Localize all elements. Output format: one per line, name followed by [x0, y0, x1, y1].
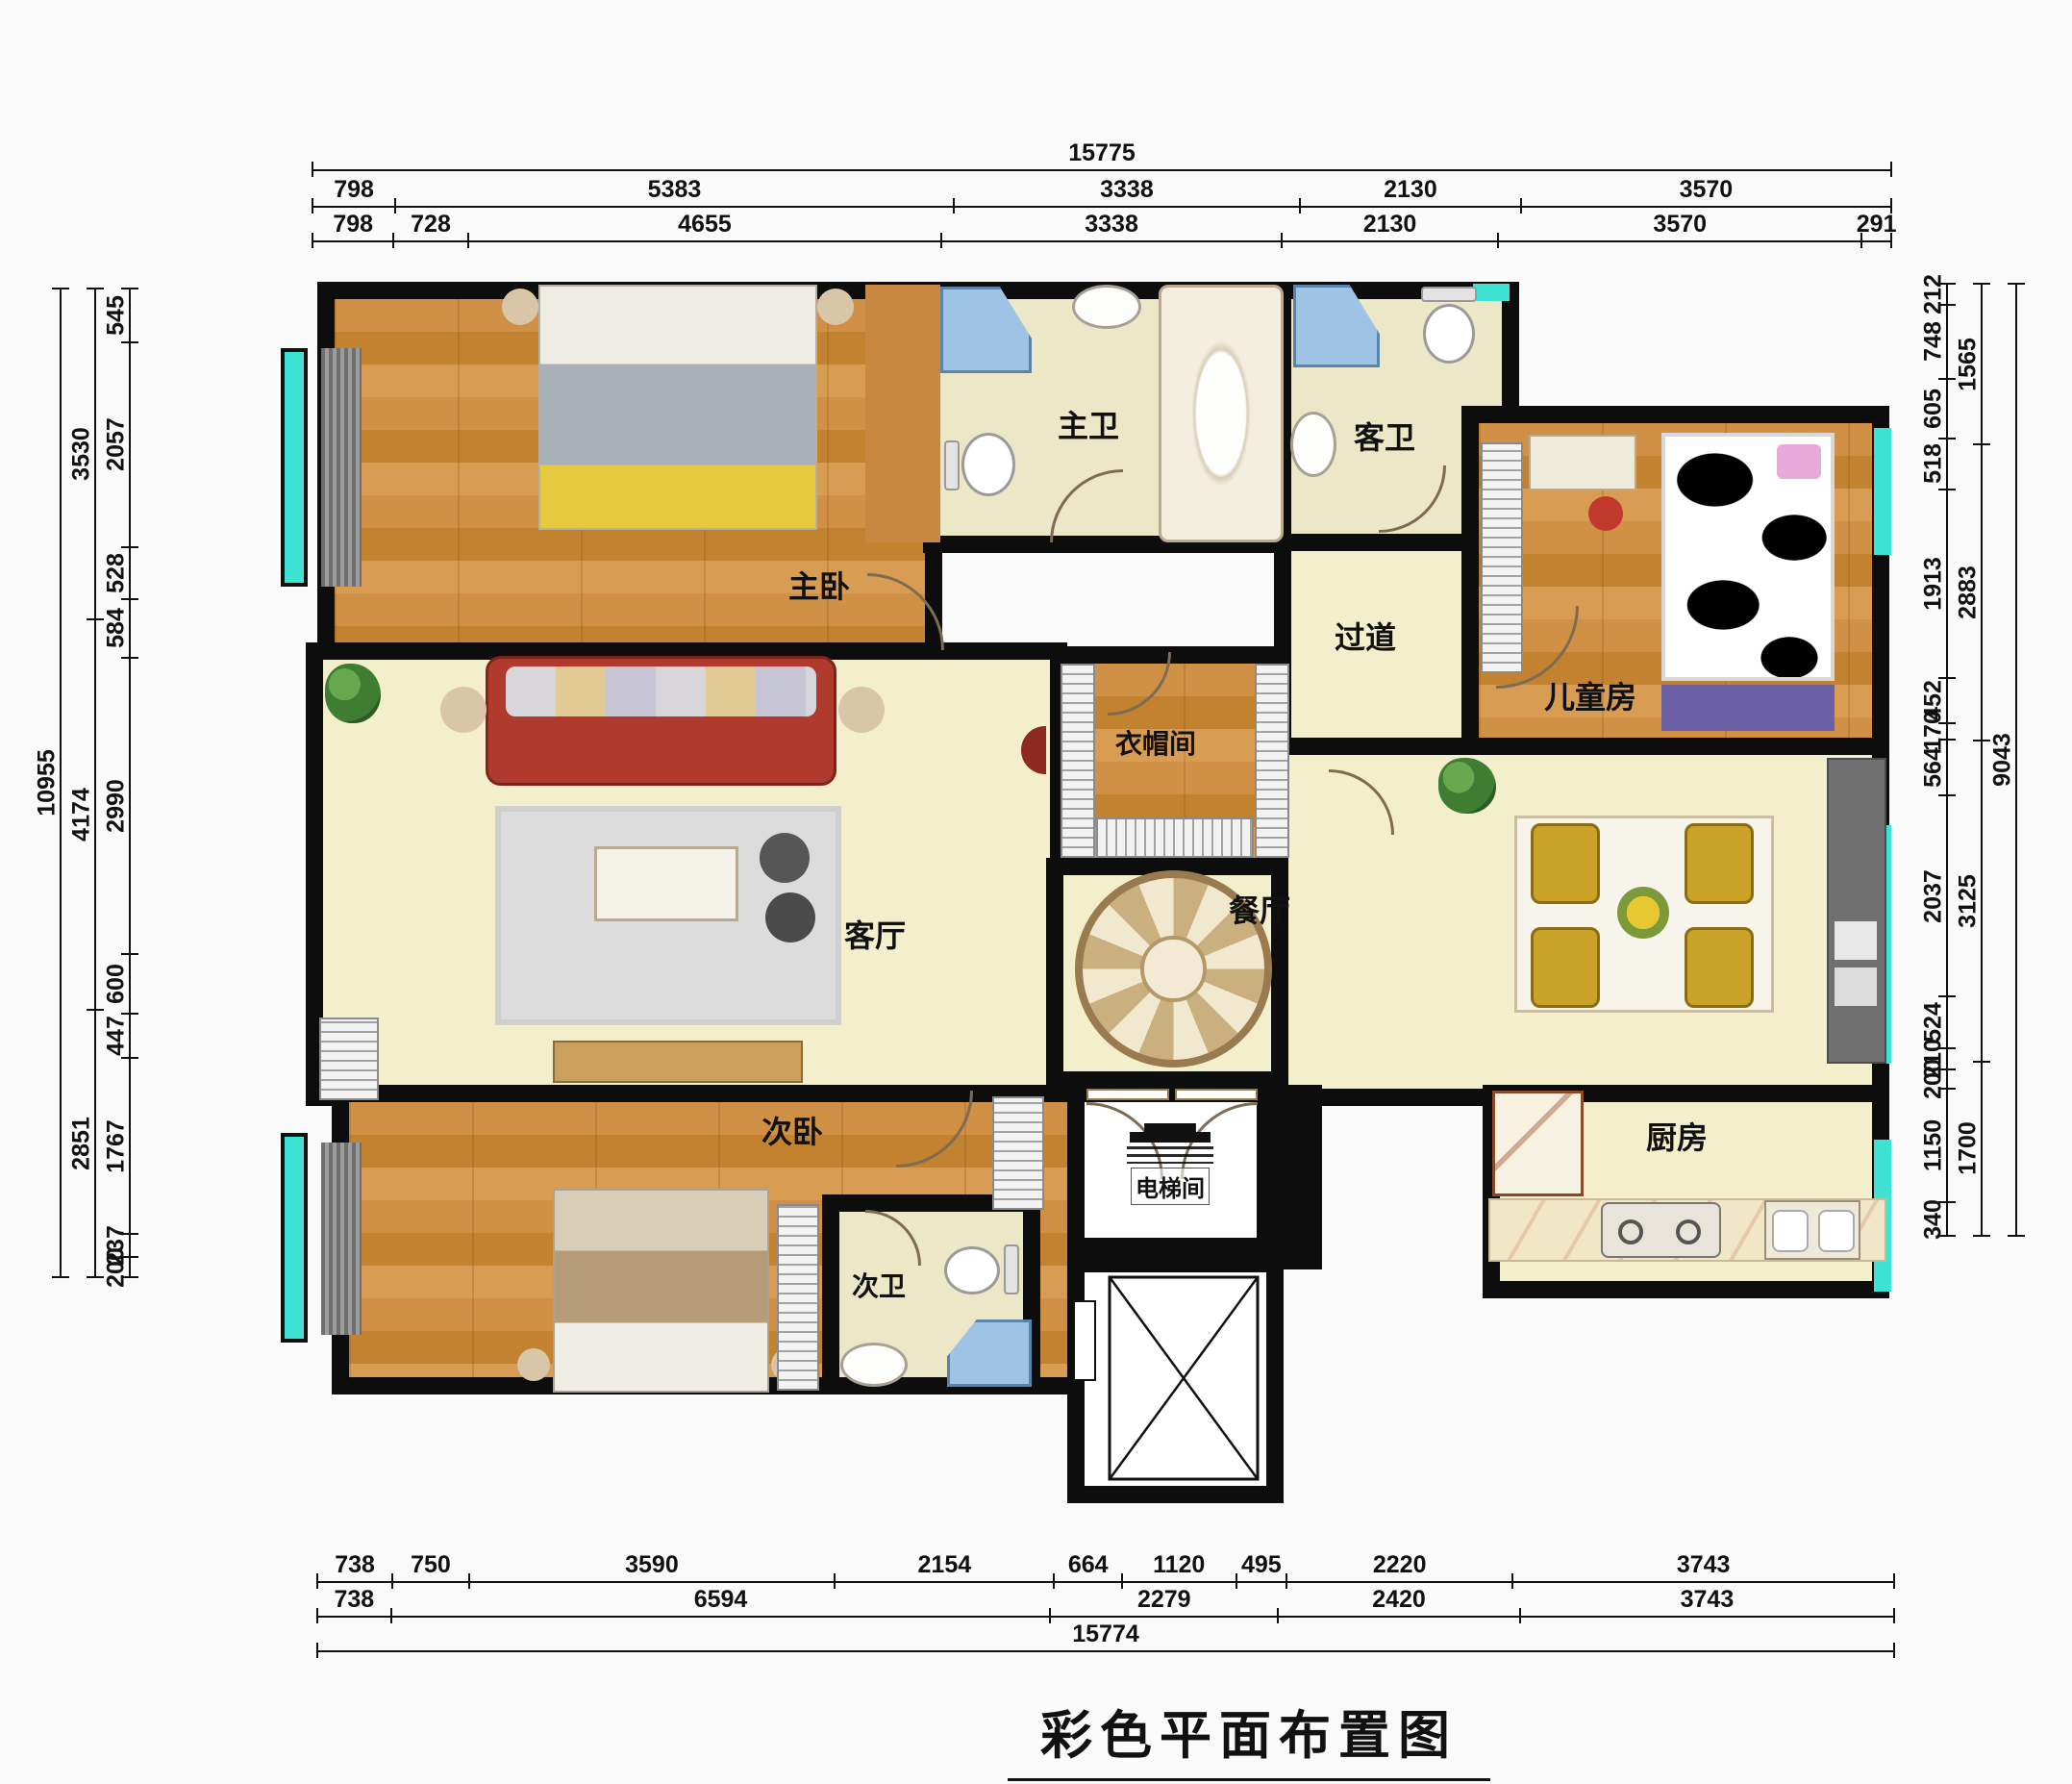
dim-segment: 212 [1935, 284, 1960, 305]
dim-value: 2279 [1137, 1586, 1191, 1614]
dim-segment: 1767 [117, 1058, 142, 1233]
dim-segment: 5383 [395, 188, 954, 214]
drawing-title: 彩色平面布置图 [1008, 1693, 1490, 1781]
dining-chair-2 [1531, 927, 1600, 1008]
label-hallway: 过道 [1335, 614, 1396, 658]
kitchen-sink [1764, 1200, 1860, 1260]
window-second-bay [281, 1133, 308, 1343]
dim-value: 495 [1241, 1551, 1282, 1579]
second-sink [840, 1343, 908, 1387]
dim-value: 3743 [1677, 1551, 1731, 1579]
dim-value: 1565 [1955, 338, 1983, 391]
dining-sideboard [1827, 758, 1886, 1064]
dim-value: 545 [103, 295, 131, 336]
lobby-wardrobe [992, 1096, 1044, 1210]
dim-segment: 2420 [1278, 1598, 1520, 1623]
dim-segment: 170 [1935, 723, 1960, 740]
second-bed [553, 1189, 769, 1393]
dim-segment: 518 [1935, 439, 1960, 490]
label-kitchen: 厨房 [1646, 1114, 1708, 1158]
guest-sink [1290, 412, 1336, 477]
master-bed [538, 285, 817, 530]
dim-value: 5383 [648, 176, 702, 204]
dim-value: 738 [335, 1586, 375, 1614]
living-plant [325, 664, 381, 723]
dim-value: 200 [103, 1247, 131, 1288]
dim-value: 15775 [1068, 139, 1136, 167]
dim-segment: 15775 [312, 152, 1891, 177]
dining-centerpiece [1617, 887, 1669, 939]
dim-value: 2037 [1920, 869, 1948, 923]
master-toilet [961, 433, 1015, 496]
sink-basin-1 [1772, 1210, 1809, 1252]
master-sink [1072, 285, 1141, 329]
dim-segment: 584 [117, 599, 142, 657]
shaft-side-panel [1073, 1300, 1096, 1381]
dining-chair-3 [1685, 823, 1754, 904]
dim-segment: 3338 [941, 223, 1281, 248]
coffee-table [594, 846, 738, 921]
master-bathtub [1159, 285, 1284, 542]
stove-burner-1 [1618, 1219, 1643, 1244]
dim-value: 518 [1920, 443, 1948, 484]
dim-value: 2420 [1372, 1586, 1426, 1614]
dim-segment: 664 [1054, 1564, 1121, 1589]
dim-value: 3338 [1100, 176, 1154, 204]
label-second-bath: 次卫 [852, 1266, 906, 1304]
dim-chain-left-inner: 545205752858429906004471767237200 [117, 289, 142, 1277]
dim-segment: 4655 [468, 223, 942, 248]
dining-chair-4 [1685, 927, 1754, 1008]
label-guest-bath: 客卫 [1354, 414, 1415, 458]
dim-chain-right-outer: 9043 [2004, 284, 2029, 1236]
dim-segment: 2130 [1282, 223, 1499, 248]
label-elevator: 电梯间 [1131, 1168, 1210, 1205]
sideboard-appliance-2 [1835, 967, 1877, 1006]
label-master-bath: 主卫 [1058, 402, 1119, 446]
dim-value: 3338 [1085, 211, 1138, 239]
dim-segment: 3590 [469, 1564, 835, 1589]
dining-chair-1 [1531, 823, 1600, 904]
dim-value: 10955 [34, 749, 62, 817]
dim-segment: 2154 [835, 1564, 1054, 1589]
dim-segment: 1700 [1969, 1062, 1994, 1237]
dim-segment: 15774 [317, 1633, 1894, 1658]
dim-chain-top-row3: 7987284655333821303570291 [312, 223, 1891, 248]
dim-value: 524 [1920, 1002, 1948, 1043]
guest-toilet [1423, 304, 1475, 364]
label-living-room: 客厅 [844, 912, 906, 956]
dim-value: 728 [411, 211, 451, 239]
dim-value: 600 [103, 964, 131, 1004]
dim-segment: 528 [117, 547, 142, 600]
dim-segment: 200 [117, 1257, 142, 1277]
dim-value: 15774 [1072, 1621, 1139, 1648]
dim-value: 291 [1857, 211, 1897, 239]
dim-value: 2851 [68, 1117, 96, 1170]
dim-value: 528 [103, 553, 131, 593]
dim-chain-right-inner: 2127486055181913452170564203752421020011… [1935, 284, 1960, 1236]
children-pillow [1777, 444, 1821, 479]
cloak-shelf-right [1255, 664, 1289, 858]
sideboard-appliance-1 [1835, 921, 1877, 960]
sofa [486, 656, 836, 786]
dim-value: 2130 [1384, 176, 1437, 204]
dim-chain-bottom-row1: 73875035902154664112049522203743 [317, 1564, 1894, 1589]
second-toilet-tank [1004, 1244, 1019, 1294]
kitchen-table [1492, 1091, 1584, 1196]
cloak-shelf-bottom [1096, 817, 1254, 858]
dim-value: 3125 [1955, 874, 1983, 928]
dim-value: 584 [103, 609, 131, 649]
dim-value: 750 [411, 1551, 451, 1579]
dim-segment: 6594 [391, 1598, 1051, 1623]
dim-segment: 2883 [1969, 444, 1994, 741]
master-nightstand-right [817, 289, 854, 325]
master-toilet-tank [944, 440, 960, 490]
pouf-1 [760, 833, 810, 883]
window-guestbath-top [1473, 284, 1510, 301]
children-rug [1661, 685, 1835, 731]
dim-value: 564 [1920, 747, 1948, 788]
dim-value: 3530 [68, 427, 96, 481]
kitchen-stove [1601, 1202, 1721, 1258]
dim-segment: 738 [317, 1598, 391, 1623]
entry-medallion-center [1140, 936, 1206, 1001]
dim-segment: 2990 [117, 658, 142, 955]
second-toilet [944, 1246, 1000, 1294]
dim-chain-bottom-total: 15774 [317, 1633, 1894, 1658]
elevator-shaft-x [1108, 1275, 1260, 1481]
dim-value: 447 [103, 1016, 131, 1056]
window-master-bay [281, 348, 308, 587]
dim-value: 3743 [1681, 1586, 1735, 1614]
dim-segment: 340 [1935, 1202, 1960, 1236]
dim-segment: 3570 [1498, 223, 1861, 248]
dim-segment: 564 [1935, 740, 1960, 795]
second-wardrobe [777, 1204, 819, 1391]
dim-segment: 600 [117, 954, 142, 1014]
sofa-cushions [506, 666, 816, 716]
master-nightstand-left [502, 289, 538, 325]
dim-segment: 728 [393, 223, 467, 248]
dim-value: 1913 [1920, 557, 1948, 611]
guest-toilet-tank [1421, 287, 1477, 302]
dim-value: 2154 [918, 1551, 972, 1579]
dim-value: 2057 [103, 418, 131, 472]
dim-segment: 3743 [1520, 1598, 1894, 1623]
sink-basin-2 [1818, 1210, 1855, 1252]
dim-segment: 291 [1861, 223, 1891, 248]
dim-value: 2130 [1363, 211, 1417, 239]
dim-value: 4174 [68, 788, 96, 842]
label-master-bedroom: 主卧 [788, 563, 850, 607]
second-nightstand-left [517, 1348, 550, 1381]
label-second-bedroom: 次卧 [761, 1108, 823, 1152]
sofa-side-table-left [440, 687, 487, 733]
dim-value: 3570 [1653, 211, 1707, 239]
dining-plant [1438, 758, 1496, 814]
master-curtain [321, 348, 362, 587]
label-cloakroom: 衣帽间 [1115, 723, 1196, 762]
dim-segment: 545 [117, 289, 142, 342]
dim-segment: 2057 [117, 342, 142, 546]
window-children-right [1874, 428, 1891, 555]
dim-value: 3590 [625, 1551, 679, 1579]
dim-value: 2220 [1373, 1551, 1427, 1579]
label-dining-room: 餐厅 [1229, 887, 1290, 931]
elevator-door-right [1175, 1089, 1258, 1100]
children-stool [1588, 496, 1623, 531]
children-bed [1661, 433, 1835, 681]
dim-value: 2990 [103, 779, 131, 833]
dim-segment: 798 [312, 223, 393, 248]
cloak-shelf-left [1061, 664, 1095, 858]
dim-value: 2883 [1955, 565, 1983, 619]
dim-chain-top-total: 15775 [312, 152, 1891, 177]
dim-value: 1120 [1153, 1551, 1205, 1579]
dim-segment: 495 [1236, 1564, 1286, 1589]
dim-segment: 9043 [2004, 284, 2029, 1236]
dim-value: 4655 [678, 211, 732, 239]
shoe-cabinet [319, 1018, 379, 1100]
floor-plan-canvas: 15775 7985383333821303570 79872846553338… [0, 0, 2072, 1784]
dim-segment: 447 [117, 1014, 142, 1058]
elevator-door-left [1086, 1089, 1169, 1100]
pouf-2 [765, 892, 815, 942]
dim-value: 6594 [694, 1586, 748, 1614]
tv-stand [553, 1041, 803, 1083]
dim-value: 605 [1920, 389, 1948, 429]
sofa-side-table-right [838, 687, 885, 733]
dim-segment: 200 [1935, 1069, 1960, 1090]
dim-segment: 750 [392, 1564, 468, 1589]
dim-value: 798 [334, 176, 374, 204]
dim-segment: 3125 [1969, 741, 1994, 1062]
dim-value: 664 [1068, 1551, 1109, 1579]
dim-value: 748 [1920, 321, 1948, 362]
dim-value: 1700 [1955, 1121, 1983, 1175]
stove-burner-2 [1676, 1219, 1701, 1244]
dim-value: 1767 [103, 1119, 131, 1173]
dim-value: 798 [333, 211, 373, 239]
dim-value: 9043 [1989, 733, 2017, 787]
dim-value: 3570 [1680, 176, 1734, 204]
master-tv-cabinet [865, 285, 940, 542]
dim-segment: 1565 [1969, 284, 1994, 444]
dim-value: 738 [335, 1551, 375, 1579]
children-desk [1529, 435, 1636, 490]
wall-entry-column [1274, 1085, 1322, 1269]
elevator-symbol-dashes [1127, 1146, 1213, 1164]
dim-value: 340 [1920, 1199, 1948, 1240]
second-curtain [321, 1143, 362, 1335]
label-children-room: 儿童房 [1544, 673, 1636, 717]
dim-value: 1150 [1920, 1119, 1948, 1171]
